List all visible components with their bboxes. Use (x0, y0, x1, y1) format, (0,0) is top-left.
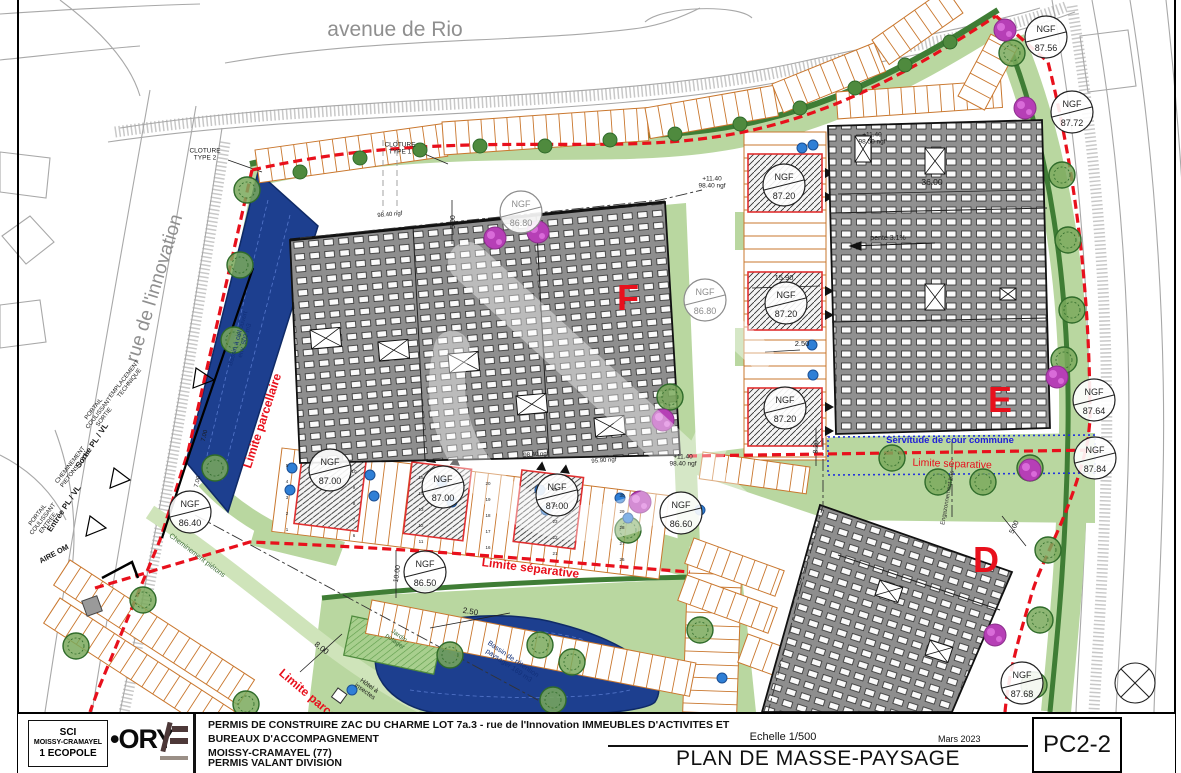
map-label: 36.00 (921, 177, 943, 187)
client-name-line1: SCI (60, 727, 77, 740)
tree-icon (1059, 297, 1085, 323)
map-label: pente 3.1% (870, 235, 905, 242)
map-label: D (973, 539, 999, 580)
tree-icon (540, 687, 566, 712)
ngf-marker: NGF86.60 (660, 492, 702, 534)
tree-icon (999, 40, 1025, 66)
svg-text:NGF: NGF (321, 457, 341, 467)
svg-text:NGF: NGF (696, 287, 716, 297)
svg-text:86.40: 86.40 (179, 518, 202, 528)
sheet-border-right (1174, 0, 1176, 773)
tree-icon (879, 445, 905, 471)
svg-text:86.80: 86.80 (510, 218, 533, 228)
stall-number: 22 (552, 535, 558, 540)
map-label: 10.00 (393, 565, 402, 583)
skylight (310, 327, 342, 349)
stall-number: 19 (485, 497, 491, 502)
ngf-marker: NGF87.00 (536, 474, 578, 516)
map-label: avenue de Rio (327, 18, 462, 41)
ngf-marker: NGF87.20 (764, 387, 806, 429)
flowering-shrub-icon (484, 227, 506, 249)
svg-text:87.56: 87.56 (1035, 43, 1058, 53)
svg-text:87.68: 87.68 (1011, 689, 1034, 699)
building-d (762, 505, 1012, 712)
svg-text:86.60: 86.60 (670, 519, 693, 529)
planting-dot-icon (285, 485, 295, 495)
map-label: +11.4098.50 ngf (858, 131, 885, 145)
flowering-shrub-icon (994, 19, 1016, 41)
tree-icon (233, 691, 259, 712)
planting-dot-icon (797, 143, 807, 153)
stall-number: 16 (485, 545, 491, 550)
stall-number: 11 (419, 539, 424, 544)
svg-text:NGF: NGF (434, 474, 454, 484)
stall-number: 13 (418, 507, 424, 512)
ngf-marker: NGF86.80 (500, 191, 542, 233)
map-label: 5.00 (450, 215, 457, 229)
flowering-shrub-icon (1046, 366, 1068, 388)
tree-icon (1027, 607, 1053, 633)
planting-dot-icon (717, 673, 727, 683)
svg-text:NGF: NGF (1085, 387, 1105, 397)
map-label: 95.90 ngf (591, 457, 617, 465)
site-plan-map: NGF87.56NGF87.72NGF86.80NGF86.80NGF87.20… (0, 0, 1181, 712)
svg-text:87.20: 87.20 (773, 191, 796, 201)
planting-dot-icon (365, 470, 375, 480)
stall-number: 23 (552, 519, 558, 524)
hedge-bush-icon (353, 151, 367, 165)
date-label: Mars 2023 (938, 734, 981, 744)
tree-icon (687, 617, 713, 643)
map-label: 2.50 (795, 339, 810, 348)
map-label: +11.4098.40 ngf (669, 453, 696, 467)
ngf-marker: NGF87.20 (763, 164, 805, 206)
stall-number: 15 (418, 475, 424, 480)
hedge-bush-icon (538, 139, 552, 153)
svg-text:86.80: 86.80 (694, 306, 717, 316)
sheet-number-box: PC2-2 (1032, 717, 1122, 773)
survey-cross-icon (1115, 663, 1155, 703)
tree-icon (1055, 227, 1081, 253)
ngf-marker: NGF87.20 (765, 282, 807, 324)
svg-text:NGF: NGF (1086, 445, 1106, 455)
map-label: E (988, 379, 1012, 420)
stall-number: 18 (485, 513, 491, 518)
svg-text:NGF: NGF (672, 500, 692, 510)
hedge-bush-icon (733, 117, 747, 131)
svg-text:NGF: NGF (776, 395, 796, 405)
tree-icon (1049, 162, 1075, 188)
tree-icon (63, 633, 89, 659)
map-label: AIRE OM (38, 542, 71, 565)
map-label: +11.4098.40 ngf (698, 175, 725, 189)
hedge-bush-icon (603, 133, 617, 147)
drawing-sheet: NGF87.56NGF87.72NGF86.80NGF86.80NGF87.20… (0, 0, 1181, 773)
tree-icon (202, 455, 228, 481)
svg-text:86.50: 86.50 (414, 578, 437, 588)
skylight (1000, 288, 1016, 300)
skylight (925, 284, 945, 310)
svg-text:87.84: 87.84 (1084, 464, 1107, 474)
client-box: SCI MOISSY-CRAMAYEL 1 ECOPOLE (28, 720, 108, 767)
map-label: 8.20 (813, 440, 821, 454)
client-name-line3: 1 ECOPOLE (39, 748, 96, 761)
svg-text:NGF: NGF (777, 290, 797, 300)
stall-number: 26 (619, 557, 625, 562)
stall-number: 17 (485, 529, 491, 534)
project-line3: PERMIS VALANT DIVISION (208, 756, 342, 770)
scale-label: Echelle 1/500 (618, 731, 948, 743)
tree-icon (970, 469, 996, 495)
svg-text:87.20: 87.20 (774, 414, 797, 424)
ngf-marker: NGF86.50 (404, 551, 446, 593)
flowering-shrub-icon (1014, 97, 1036, 119)
stall-number: 27 (619, 541, 625, 546)
sheet-border-left (17, 0, 19, 773)
tree-icon (227, 252, 253, 278)
svg-text:NGF: NGF (512, 199, 532, 209)
svg-text:87.72: 87.72 (1061, 118, 1084, 128)
map-label: Servitude de cour commune (886, 435, 1014, 446)
tree-icon (1035, 537, 1061, 563)
hedge-bush-icon (793, 101, 807, 115)
stall-number: 20 (485, 481, 491, 486)
ngf-marker: NGF87.00 (309, 449, 351, 491)
svg-text:NGF: NGF (181, 499, 201, 509)
tree-icon (437, 642, 463, 668)
ngf-marker: NGF86.40 (169, 491, 211, 533)
stall-number: 29 (619, 509, 625, 514)
svg-text:87.20: 87.20 (775, 309, 798, 319)
hedge-bush-icon (898, 58, 912, 72)
stall-number: 25 (552, 487, 558, 492)
svg-text:87.64: 87.64 (1083, 406, 1106, 416)
hedge-bush-icon (668, 127, 682, 141)
tree-icon (130, 587, 156, 613)
architect-logo-icon (154, 720, 194, 766)
stall-number: 28 (619, 525, 625, 530)
hedge-bush-icon (473, 139, 487, 153)
flowering-shrub-icon (1019, 459, 1041, 481)
stall-number: 14 (418, 491, 424, 496)
flowering-shrub-icon (984, 624, 1006, 646)
stall-number: 10 (351, 469, 357, 474)
map-label: 15.90 (775, 273, 794, 282)
stall-number: 24 (552, 503, 558, 508)
sheet-title: PLAN DE MASSE-PAYSAGE (608, 747, 1028, 771)
tree-icon (559, 649, 585, 675)
ngf-marker: NGF86.80 (684, 279, 726, 321)
ngf-marker: NGF87.64 (1073, 379, 1115, 421)
svg-text:NGF: NGF (1013, 670, 1033, 680)
ngf-marker: NGF87.56 (1025, 16, 1067, 58)
hedge-bush-icon (293, 165, 307, 179)
ngf-marker: NGF87.00 (422, 466, 464, 508)
title-block: SCI MOISSY-CRAMAYEL 1 ECOPOLE •ORY PERMI… (18, 712, 1175, 773)
stall-number: 12 (418, 523, 424, 528)
map-label: 98.40 ngf (377, 211, 403, 219)
tree-icon (234, 177, 260, 203)
svg-text:87.00: 87.00 (319, 476, 342, 486)
map-label: EMPLACEMENTTECHNIQUE (108, 359, 146, 403)
tree-icon (527, 632, 553, 658)
skylight (516, 393, 548, 415)
title-block-divider (193, 714, 196, 773)
svg-text:NGF: NGF (775, 172, 795, 182)
ngf-marker: NGF87.72 (1051, 91, 1093, 133)
svg-text:NGF: NGF (1037, 24, 1057, 34)
map-label: F (617, 277, 639, 318)
gate-mark (102, 562, 138, 578)
planting-dot-icon (808, 140, 818, 150)
svg-text:NGF: NGF (1063, 99, 1083, 109)
ngf-marker: NGF87.84 (1074, 437, 1116, 479)
tree-icon (657, 384, 683, 410)
hedge-bush-icon (943, 35, 957, 49)
client-name-line2: MOISSY-CRAMAYEL (34, 739, 102, 748)
planting-dot-icon (808, 370, 818, 380)
stall-number: 21 (552, 551, 558, 556)
map-label: CLOTURETYPE 2 (189, 147, 221, 161)
svg-text:87.00: 87.00 (432, 493, 455, 503)
skylight (925, 148, 945, 174)
ngf-marker: NGF87.68 (1001, 662, 1043, 704)
planting-dot-icon (287, 463, 297, 473)
map-label: CHEMINEMENTPIETONS 1.20m (54, 446, 92, 489)
skylight (378, 339, 410, 361)
svg-text:NGF: NGF (416, 559, 436, 569)
hedge-bush-icon (848, 81, 862, 95)
planting-dot-icon (369, 491, 379, 501)
stall-number: 30 (619, 493, 625, 498)
